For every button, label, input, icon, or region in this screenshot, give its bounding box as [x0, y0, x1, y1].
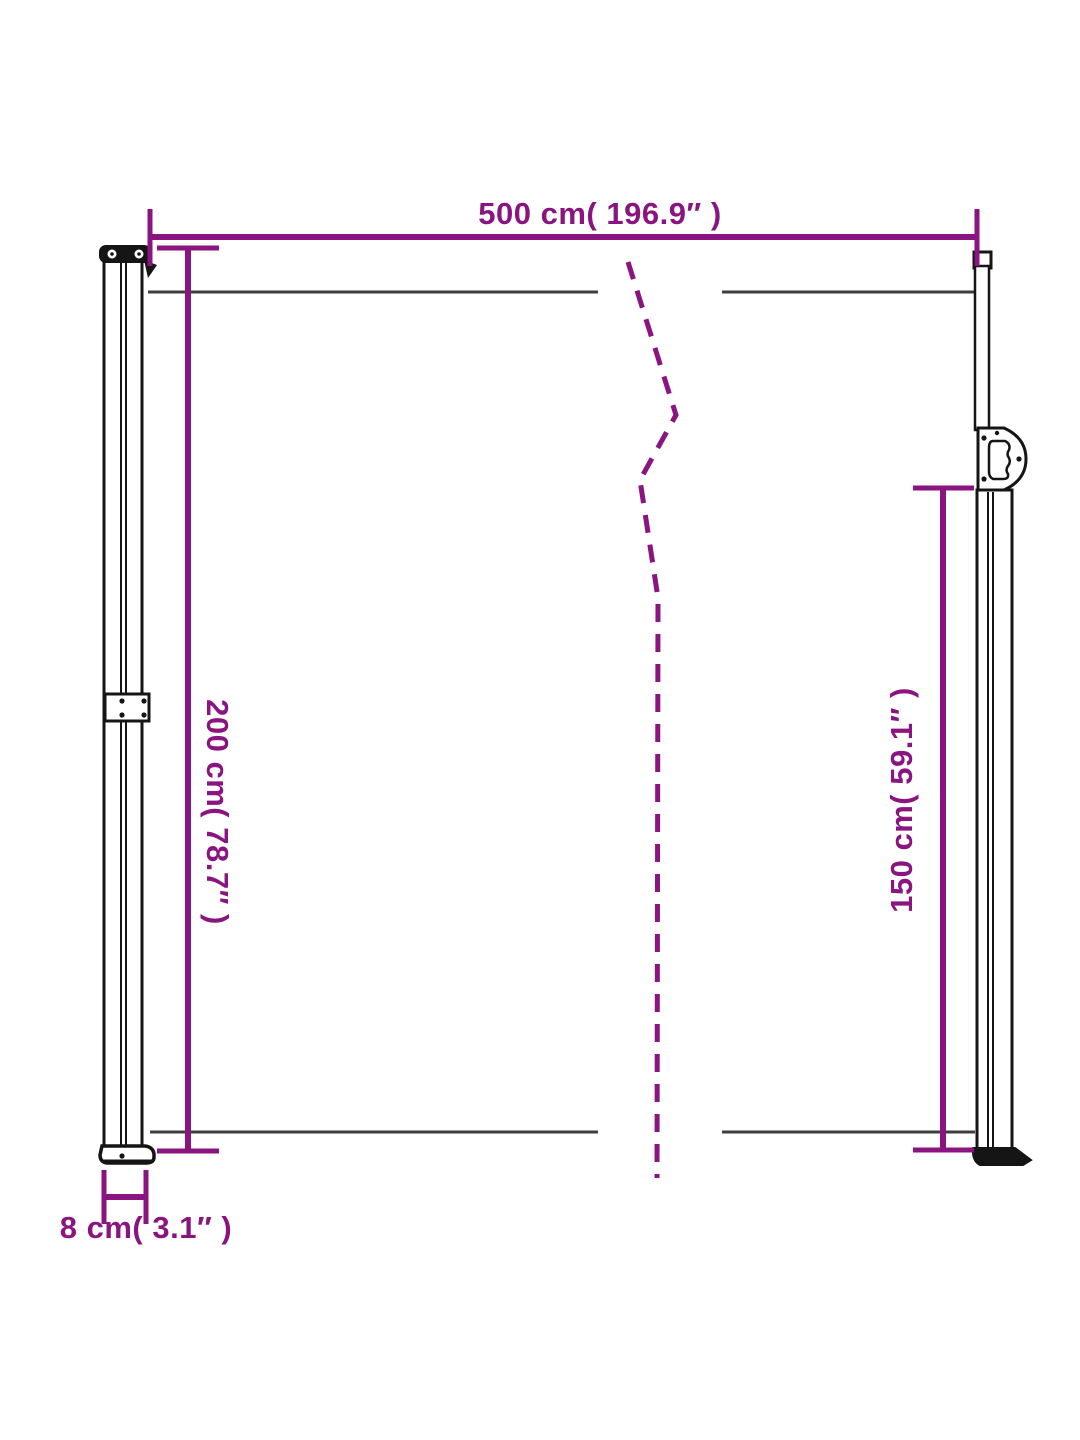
diagram-canvas: 500 cm( 196.9″ ) 200 cm( 78.7″ ) 150 cm(… — [0, 0, 1080, 1440]
screw-icon — [141, 712, 146, 717]
right-post-lower-bar — [977, 490, 1012, 1150]
screw-icon — [119, 712, 124, 717]
screw-icon — [981, 435, 986, 440]
awning-dimension-diagram: 500 cm( 196.9″ ) 200 cm( 78.7″ ) 150 cm(… — [0, 0, 1080, 1440]
center-break-line — [628, 262, 676, 1178]
left-height-dimension-label: 200 cm( 78.7″ ) — [200, 699, 235, 925]
screw-icon — [119, 1153, 124, 1158]
screw-icon — [119, 698, 124, 703]
width-dimension-label: 500 cm( 196.9″ ) — [478, 196, 721, 231]
right-post-upper-bar — [975, 266, 989, 430]
right-post — [973, 252, 1031, 1165]
screw-icon — [995, 431, 999, 435]
screw-icon — [141, 698, 146, 703]
left-post — [99, 245, 157, 1163]
right-height-dimension — [913, 488, 974, 1150]
screw-icon — [1016, 456, 1021, 461]
screw-icon — [137, 252, 141, 256]
right-post-foot — [973, 1148, 1031, 1165]
right-height-dimension-label: 150 cm( 59.1″ ) — [884, 687, 919, 913]
screw-icon — [981, 476, 986, 481]
awning-panel-edges — [148, 292, 975, 1132]
pull-handle-grip — [989, 441, 1010, 479]
depth-dimension-label: 8 cm( 3.1″ ) — [60, 1210, 232, 1245]
screw-icon — [110, 252, 114, 256]
